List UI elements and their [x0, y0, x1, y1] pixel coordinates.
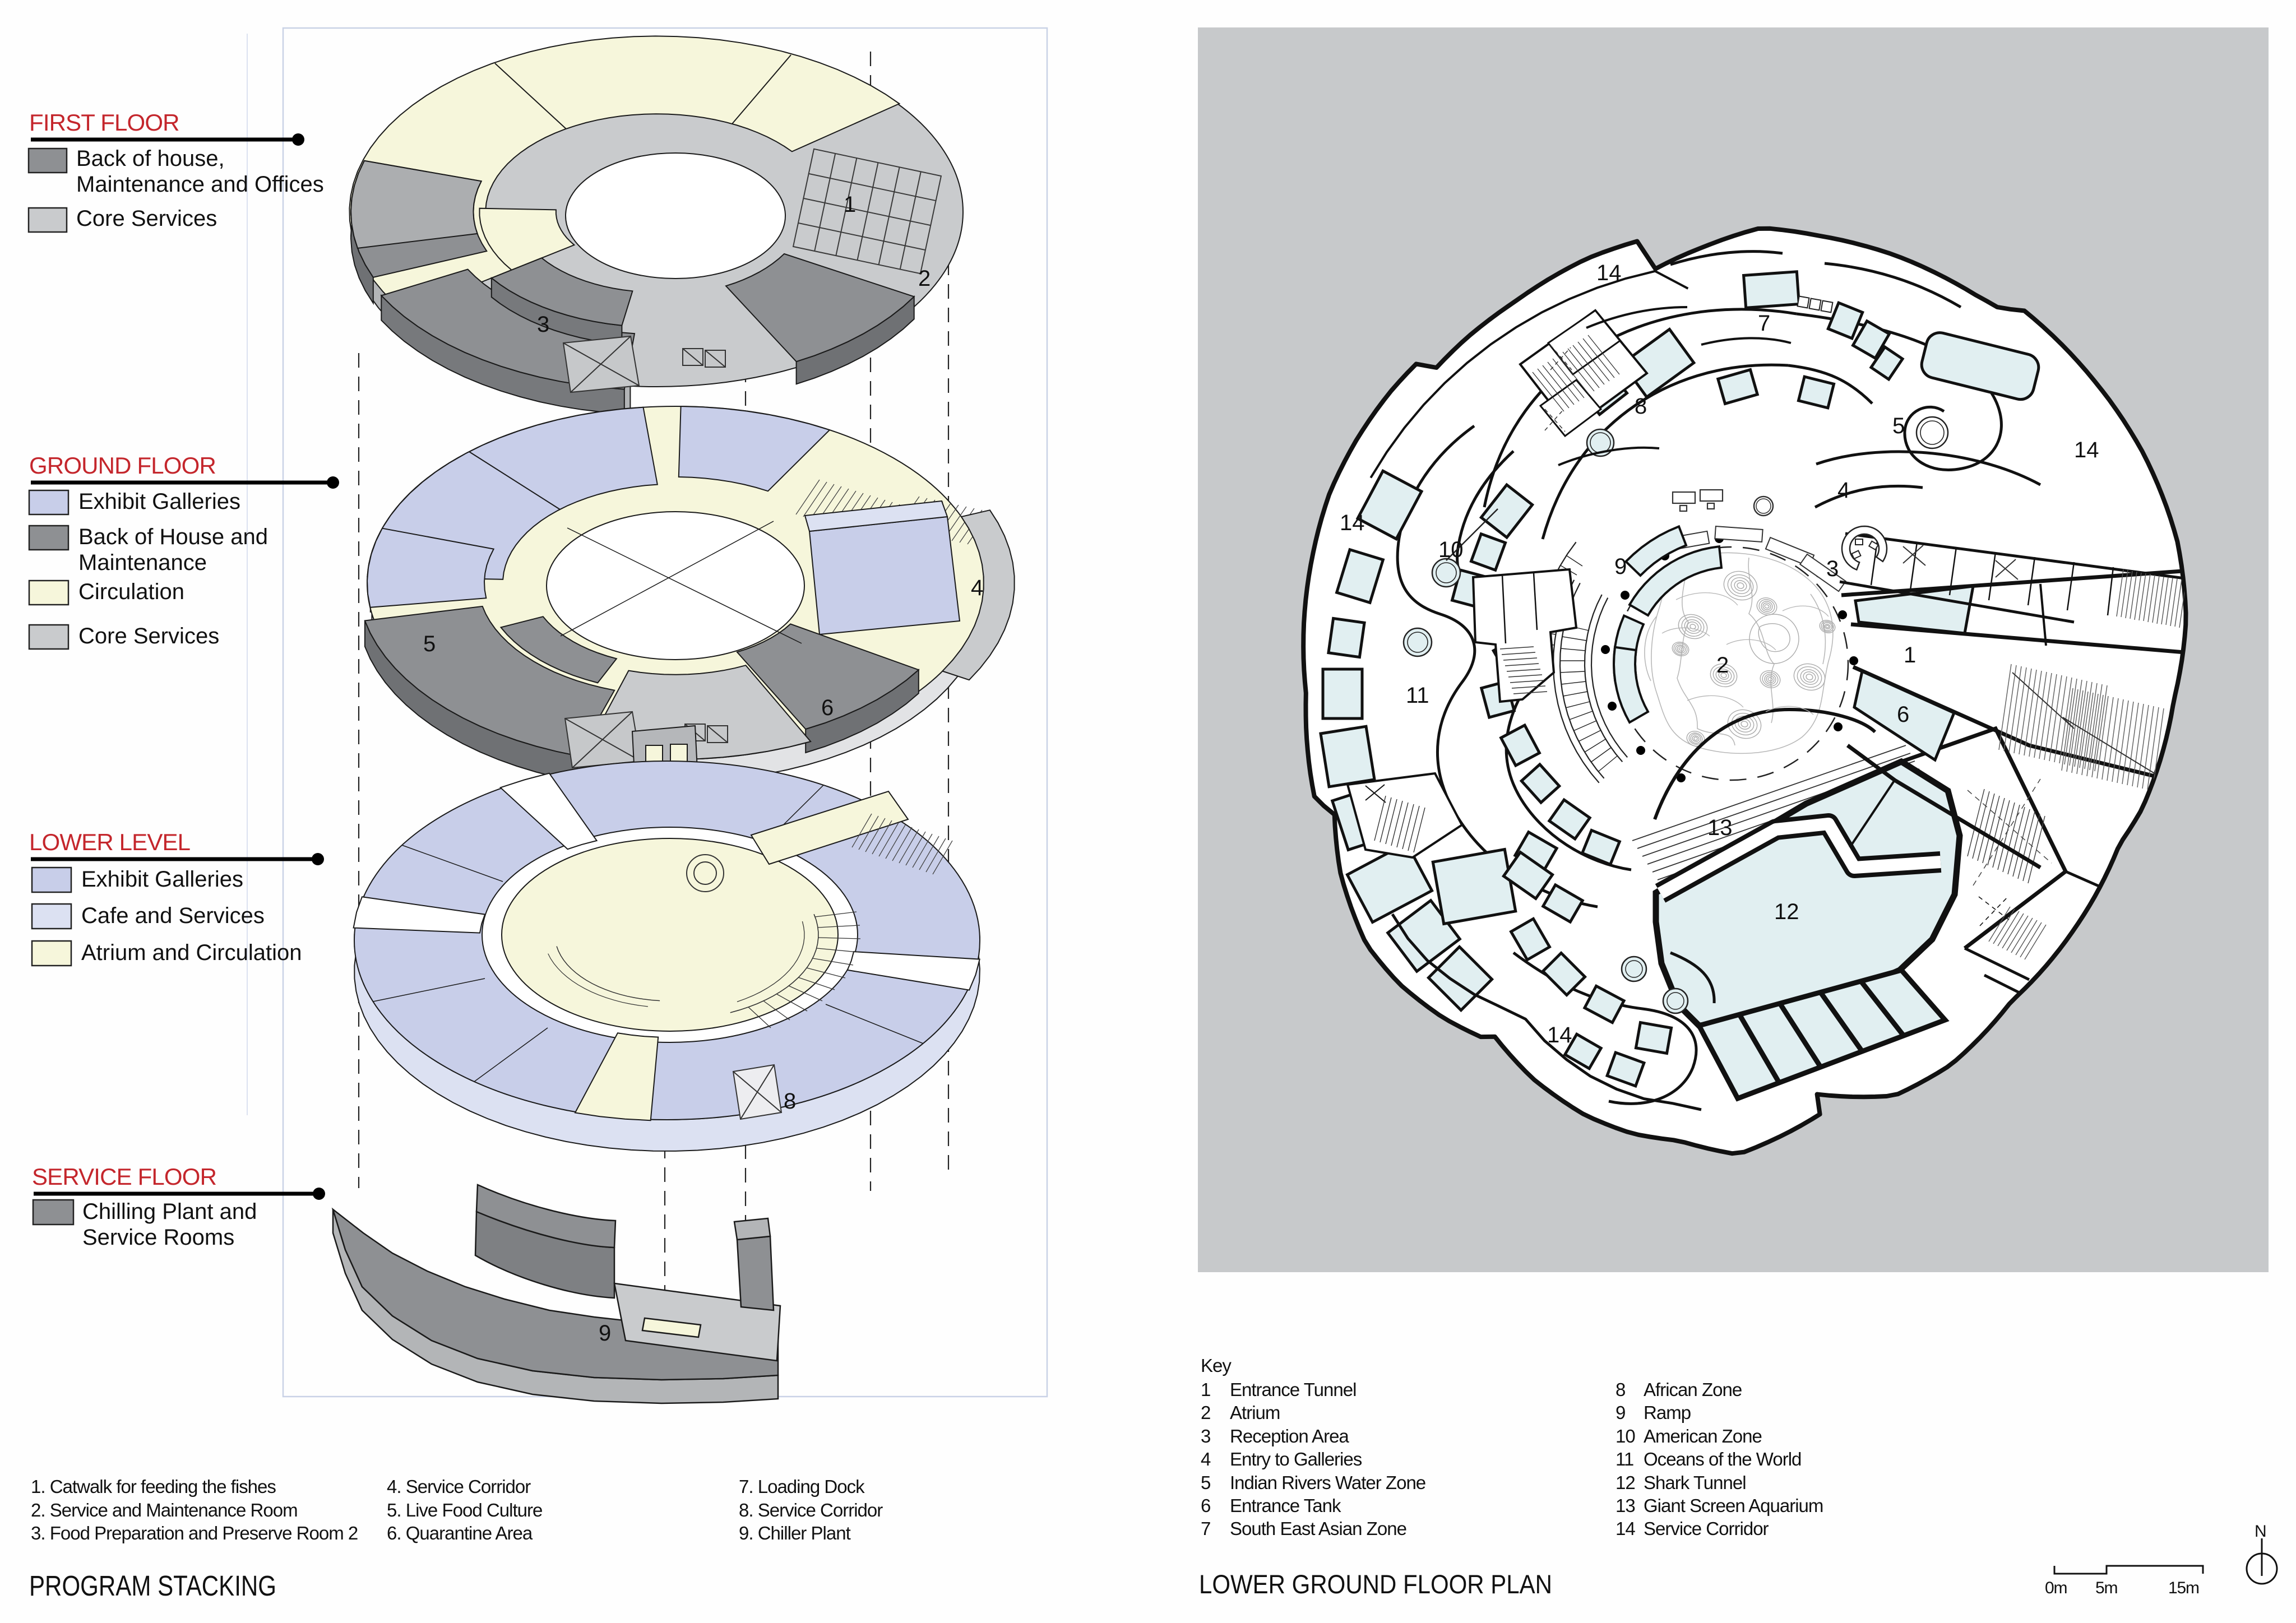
svg-text:Entrance Tank: Entrance Tank	[1230, 1495, 1341, 1516]
svg-text:6: 6	[1201, 1495, 1210, 1516]
svg-text:Shark Tunnel: Shark Tunnel	[1644, 1472, 1746, 1493]
svg-text:3: 3	[1201, 1426, 1210, 1446]
svg-text:Oceans of the World: Oceans of the World	[1644, 1449, 1801, 1469]
svg-text:3: 3	[537, 312, 549, 337]
svg-text:7: 7	[1758, 311, 1770, 336]
svg-text:8. Service Corridor: 8. Service Corridor	[739, 1500, 883, 1520]
svg-text:1: 1	[844, 192, 856, 217]
svg-text:FIRST FLOOR: FIRST FLOOR	[29, 109, 179, 136]
svg-text:Maintenance and Offices: Maintenance and Offices	[76, 172, 324, 197]
svg-text:1: 1	[1904, 643, 1916, 667]
svg-text:8: 8	[1635, 394, 1647, 419]
svg-text:Chilling Plant and: Chilling Plant and	[82, 1199, 257, 1224]
svg-text:13: 13	[1615, 1495, 1635, 1516]
svg-text:Maintenance: Maintenance	[78, 550, 207, 575]
svg-text:6. Quarantine Area: 6. Quarantine Area	[387, 1523, 533, 1543]
svg-text:Key: Key	[1201, 1355, 1232, 1376]
svg-text:Cafe and Services: Cafe and Services	[81, 903, 265, 928]
svg-text:LOWER LEVEL: LOWER LEVEL	[29, 829, 190, 855]
svg-text:5. Live Food Culture: 5. Live Food Culture	[387, 1500, 542, 1520]
svg-text:8: 8	[784, 1089, 796, 1114]
svg-text:5m: 5m	[2095, 1579, 2117, 1597]
svg-text:3. Food Preparation and Preser: 3. Food Preparation and Preserve Room 2	[31, 1523, 358, 1543]
svg-text:LOWER GROUND FLOOR PLAN: LOWER GROUND FLOOR PLAN	[1199, 1569, 1552, 1599]
svg-text:6: 6	[821, 695, 834, 720]
svg-text:9. Chiller Plant: 9. Chiller Plant	[739, 1523, 851, 1543]
svg-text:Exhibit Galleries: Exhibit Galleries	[78, 489, 240, 514]
svg-text:Reception Area: Reception Area	[1230, 1426, 1349, 1446]
svg-text:11: 11	[1406, 683, 1429, 708]
svg-text:13: 13	[1707, 815, 1733, 840]
svg-text:1. Catwalk for feeding the fis: 1. Catwalk for feeding the fishes	[31, 1476, 276, 1497]
svg-text:14: 14	[1340, 511, 1365, 535]
svg-text:10: 10	[1438, 537, 1464, 562]
svg-text:Ramp: Ramp	[1644, 1402, 1691, 1423]
svg-text:9: 9	[1615, 1402, 1625, 1423]
svg-text:10: 10	[1615, 1426, 1635, 1446]
svg-text:South East Asian Zone: South East Asian Zone	[1230, 1518, 1406, 1539]
svg-text:Atrium: Atrium	[1230, 1402, 1280, 1423]
svg-text:Core Services: Core Services	[78, 624, 219, 648]
svg-text:4: 4	[1837, 478, 1850, 503]
svg-text:5: 5	[1201, 1472, 1210, 1493]
svg-text:Giant Screen Aquarium: Giant Screen Aquarium	[1644, 1495, 1823, 1516]
svg-text:GROUND FLOOR: GROUND FLOOR	[29, 452, 216, 479]
svg-text:2: 2	[918, 266, 931, 291]
svg-text:12: 12	[1615, 1472, 1635, 1493]
svg-text:14: 14	[1615, 1518, 1635, 1539]
svg-text:15m: 15m	[2168, 1579, 2199, 1597]
svg-text:4: 4	[1201, 1449, 1211, 1469]
svg-text:2: 2	[1201, 1402, 1210, 1423]
svg-text:American Zone: American Zone	[1644, 1426, 1762, 1446]
svg-text:7: 7	[1201, 1518, 1210, 1539]
svg-text:PROGRAM STACKING: PROGRAM STACKING	[29, 1570, 276, 1602]
svg-text:2: 2	[1716, 653, 1729, 678]
svg-text:9: 9	[1614, 554, 1627, 579]
svg-text:Service Corridor: Service Corridor	[1644, 1518, 1769, 1539]
svg-text:12: 12	[1774, 899, 1799, 924]
svg-text:9: 9	[599, 1321, 611, 1346]
svg-text:1: 1	[1201, 1379, 1210, 1400]
svg-text:Atrium and Circulation: Atrium and Circulation	[81, 940, 302, 965]
svg-text:SERVICE FLOOR: SERVICE FLOOR	[32, 1163, 216, 1190]
svg-text:14: 14	[2074, 438, 2099, 462]
svg-text:N: N	[2255, 1522, 2266, 1541]
svg-text:5: 5	[423, 632, 436, 656]
svg-text:0m: 0m	[2045, 1579, 2067, 1597]
svg-text:6: 6	[1897, 702, 1909, 727]
svg-text:Circulation: Circulation	[78, 579, 184, 604]
svg-text:2. Service and Maintenance Roo: 2. Service and Maintenance Room	[31, 1500, 298, 1520]
svg-text:5: 5	[1892, 414, 1905, 438]
svg-text:Entry to Galleries: Entry to Galleries	[1230, 1449, 1362, 1469]
svg-text:7. Loading Dock: 7. Loading Dock	[739, 1476, 865, 1497]
svg-text:3: 3	[1826, 557, 1839, 581]
svg-text:Indian Rivers Water Zone: Indian Rivers Water Zone	[1230, 1472, 1425, 1493]
svg-text:Entrance Tunnel: Entrance Tunnel	[1230, 1379, 1356, 1400]
svg-text:4: 4	[971, 576, 983, 600]
svg-text:Back of house,: Back of house,	[76, 146, 225, 171]
svg-text:11: 11	[1615, 1449, 1633, 1469]
svg-text:Exhibit Galleries: Exhibit Galleries	[81, 867, 243, 892]
svg-text:Core Services: Core Services	[76, 206, 217, 231]
svg-text:Service Rooms: Service Rooms	[82, 1225, 234, 1250]
svg-text:African Zone: African Zone	[1644, 1379, 1742, 1400]
svg-text:Back of House and: Back of House and	[78, 525, 268, 549]
svg-text:4. Service Corridor: 4. Service Corridor	[387, 1476, 531, 1497]
svg-text:8: 8	[1615, 1379, 1625, 1400]
svg-text:14: 14	[1547, 1023, 1572, 1047]
